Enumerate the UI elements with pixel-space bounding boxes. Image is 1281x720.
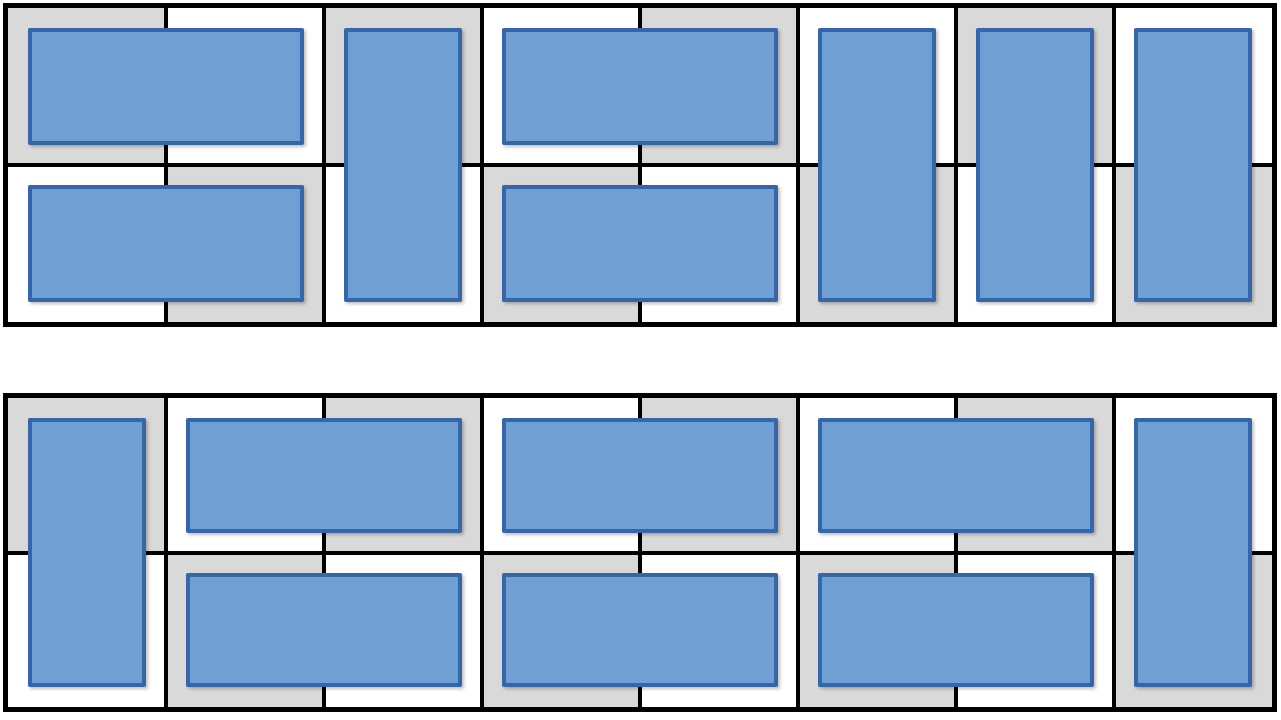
domino-horizontal bbox=[186, 573, 462, 688]
domino-horizontal bbox=[818, 573, 1094, 688]
domino-board-bottom bbox=[3, 393, 1277, 712]
domino-horizontal bbox=[502, 418, 778, 533]
domino-horizontal bbox=[502, 185, 778, 302]
domino-horizontal bbox=[502, 573, 778, 688]
figure-domino-tilings bbox=[0, 0, 1281, 720]
domino-horizontal bbox=[818, 418, 1094, 533]
domino-horizontal bbox=[502, 28, 778, 145]
domino-vertical bbox=[28, 418, 146, 687]
domino-board-top bbox=[3, 3, 1277, 327]
domino-vertical bbox=[1134, 418, 1252, 687]
domino-vertical bbox=[818, 28, 936, 302]
dominoes-layer bbox=[8, 8, 1272, 322]
domino-horizontal bbox=[28, 28, 304, 145]
dominoes-layer bbox=[8, 398, 1272, 707]
domino-vertical bbox=[1134, 28, 1252, 302]
domino-vertical bbox=[976, 28, 1094, 302]
domino-horizontal bbox=[28, 185, 304, 302]
domino-horizontal bbox=[186, 418, 462, 533]
domino-vertical bbox=[344, 28, 462, 302]
